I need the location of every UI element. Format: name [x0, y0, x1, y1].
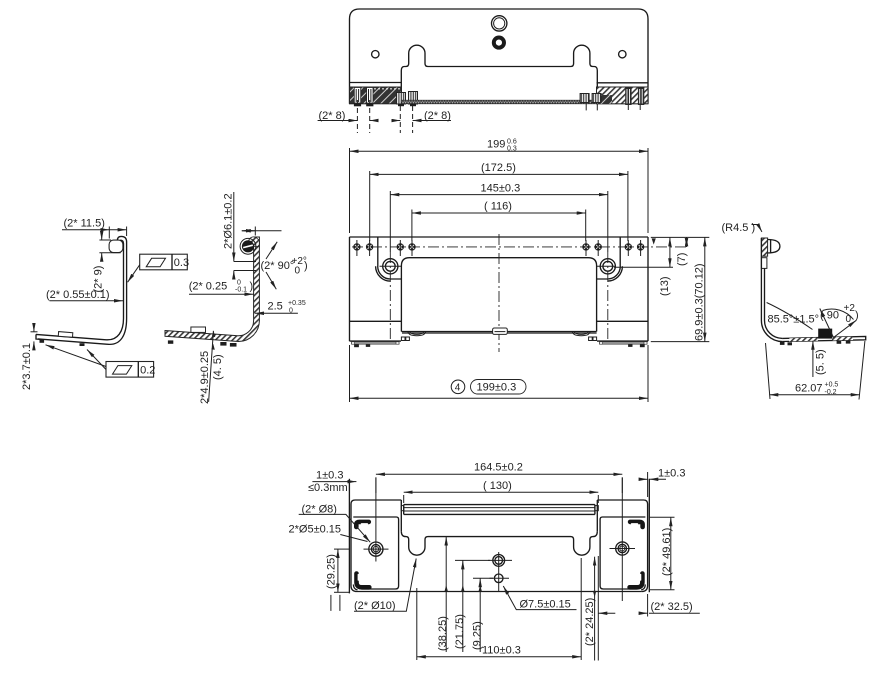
svg-text:Ø7.5±0.15: Ø7.5±0.15: [520, 599, 571, 611]
svg-text:(21.75): (21.75): [454, 614, 466, 649]
svg-text:): ): [250, 281, 254, 293]
svg-text:): ): [855, 310, 859, 322]
svg-text:+0.5: +0.5: [825, 382, 839, 389]
svg-text:0: 0: [846, 314, 852, 325]
svg-text:199: 199: [487, 139, 505, 151]
svg-text:85.5°±1.5°: 85.5°±1.5°: [768, 314, 820, 326]
svg-text:(172.5): (172.5): [481, 162, 516, 174]
svg-text:0.3: 0.3: [174, 257, 189, 269]
svg-text:0.3: 0.3: [507, 146, 517, 153]
svg-text:(2* 8): (2* 8): [319, 110, 346, 122]
svg-text:): ): [304, 260, 308, 272]
svg-text:(2* 8): (2* 8): [424, 110, 451, 122]
svg-text:2*4.9±0.25: 2*4.9±0.25: [199, 351, 211, 404]
svg-text:(2* Ø10): (2* Ø10): [354, 600, 396, 612]
svg-text:(4. 5): (4. 5): [212, 354, 224, 380]
svg-text:0.2: 0.2: [140, 365, 155, 377]
svg-text:(2* 32.5): (2* 32.5): [651, 601, 693, 613]
svg-text:2*3.7±0.1: 2*3.7±0.1: [21, 343, 33, 390]
svg-text:69.9±0.3(70.12): 69.9±0.3(70.12): [694, 263, 706, 341]
svg-text:( 116): ( 116): [484, 201, 512, 213]
svg-text:164.5±0.2: 164.5±0.2: [474, 462, 523, 474]
svg-text:(2* 90°: (2* 90°: [261, 260, 295, 272]
svg-text:4: 4: [455, 382, 461, 393]
svg-text:(38.25): (38.25): [437, 616, 449, 651]
svg-text:(2* 0.55±0.1): (2* 0.55±0.1): [46, 289, 110, 301]
svg-text:(7): (7): [676, 253, 688, 266]
svg-text:(R4.5 ): (R4.5 ): [722, 222, 756, 234]
svg-text:1±0.3: 1±0.3: [658, 468, 685, 480]
svg-text:1±0.3: 1±0.3: [316, 470, 343, 482]
svg-text:≤0.3mm: ≤0.3mm: [308, 482, 348, 494]
svg-text:-0.2: -0.2: [825, 389, 837, 396]
svg-text:-0.1: -0.1: [235, 287, 247, 294]
svg-text:0.6: 0.6: [507, 139, 517, 146]
svg-text:(2* 24.25): (2* 24.25): [584, 598, 596, 646]
svg-text:+0.35: +0.35: [288, 300, 306, 307]
svg-text:145±0.3: 145±0.3: [481, 183, 521, 195]
svg-text:(29.25): (29.25): [326, 554, 338, 589]
svg-text:( 130): ( 130): [483, 480, 512, 492]
svg-text:(2* Ø8): (2* Ø8): [302, 504, 337, 516]
svg-text:62.07: 62.07: [795, 383, 823, 395]
svg-text:2.5: 2.5: [268, 301, 283, 313]
svg-text:(2* 11.5): (2* 11.5): [64, 218, 105, 230]
svg-text:(13): (13): [659, 276, 671, 296]
svg-text:(5. 5): (5. 5): [815, 349, 827, 375]
svg-text:0: 0: [237, 280, 241, 287]
svg-text:0: 0: [295, 266, 301, 277]
svg-text:2*Ø6.1±0.2: 2*Ø6.1±0.2: [223, 193, 235, 249]
svg-text:2*Ø5±0.15: 2*Ø5±0.15: [289, 524, 342, 536]
svg-text:(2* 49.61): (2* 49.61): [661, 528, 673, 576]
svg-text:(2* 0.25: (2* 0.25: [189, 281, 228, 293]
svg-text:199±0.3: 199±0.3: [477, 382, 517, 394]
svg-text:110±0.3: 110±0.3: [482, 645, 521, 657]
